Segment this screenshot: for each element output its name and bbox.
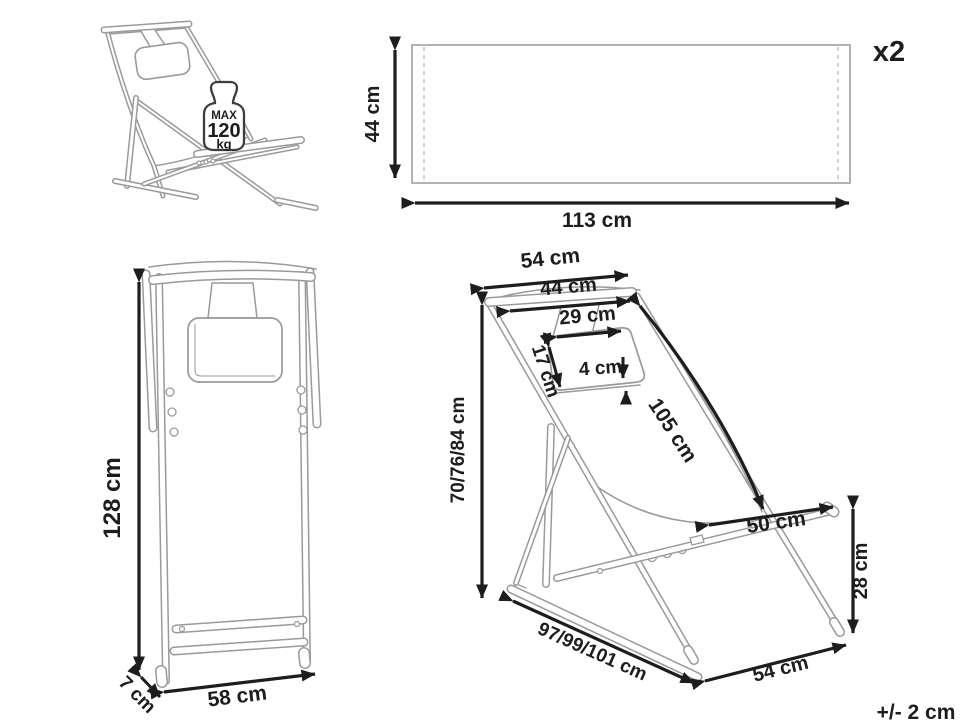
front-height-label: 128 cm xyxy=(99,457,126,538)
side-base-width-label: 54 cm xyxy=(750,652,810,687)
side-fabric-length-label: 105 cm xyxy=(643,394,701,466)
front-view: 128 cm 58 cm 7 cm xyxy=(99,261,317,717)
side-leg-far-inner xyxy=(516,438,568,583)
front-outer-rail-right-inner xyxy=(310,272,317,424)
front-hinge-notch xyxy=(299,426,307,434)
tolerance-note: +/- 2 cm xyxy=(877,701,956,724)
front-depth-label: 7 cm xyxy=(114,672,159,717)
fabric-quantity-label: x2 xyxy=(873,36,905,68)
front-hinge-notch xyxy=(170,428,178,436)
front-screw xyxy=(180,627,185,632)
front-headrest-pillow xyxy=(188,318,282,382)
front-outer-rail-left-inner xyxy=(146,274,153,428)
perspective-view: MAX 120 kg xyxy=(104,24,316,208)
front-hinge-notch xyxy=(166,388,174,396)
side-base-notch xyxy=(519,585,526,588)
side-pillow-width-label: 29 cm xyxy=(558,303,616,330)
side-fabric-sag xyxy=(596,486,763,523)
side-pillow-thickness-label: 4 cm xyxy=(578,357,623,381)
iso-rack-notch xyxy=(211,159,215,163)
front-hinge-notch xyxy=(168,408,176,416)
max-weight-unit: kg xyxy=(216,137,231,152)
front-screw xyxy=(295,622,300,627)
product-dimensions-sheet: MAX 120 kg 44 cm 113 cm x2 xyxy=(0,0,970,728)
iso-base-bar-left-inner xyxy=(115,181,196,197)
iso-rack-notch xyxy=(197,161,201,165)
side-seat-length-label: 50 cm xyxy=(745,507,807,538)
front-foot-left-inner xyxy=(161,671,162,682)
front-hinge-notch xyxy=(297,386,305,394)
fabric-panel-view: 44 cm 113 cm x2 xyxy=(362,36,905,232)
fabric-height-label: 44 cm xyxy=(362,86,384,143)
side-pivot-bolt xyxy=(598,569,603,574)
front-headrest-strap xyxy=(208,283,257,318)
front-hinge-notch xyxy=(298,406,306,414)
side-view: 54 cm 44 cm 29 cm 17 cm 4 cm 105 cm 70/7… xyxy=(448,244,872,687)
side-top-width-label: 54 cm xyxy=(520,244,582,273)
fabric-width-label: 113 cm xyxy=(562,209,632,232)
deck-chair-dimensions-diagram: MAX 120 kg 44 cm 113 cm x2 xyxy=(0,0,970,728)
front-top-curve xyxy=(149,261,316,269)
front-foot-right-inner xyxy=(304,653,305,663)
side-seat-front-height-label: 28 cm xyxy=(850,543,872,600)
fabric-panel-outline xyxy=(412,45,850,183)
front-inner-rail-left-inner xyxy=(159,277,166,681)
side-back-height-label: 70/76/84 cm xyxy=(448,397,469,504)
iso-headrest-pillow xyxy=(134,41,191,80)
iso-rack-notch xyxy=(204,160,208,164)
